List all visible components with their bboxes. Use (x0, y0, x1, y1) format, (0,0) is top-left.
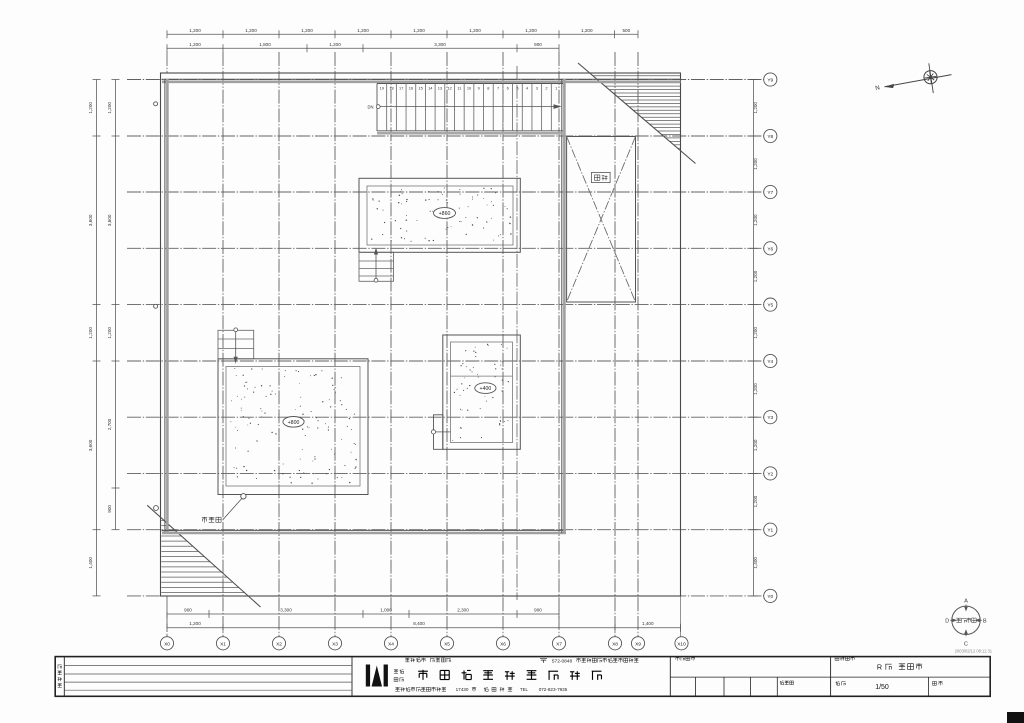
svg-text:1,200: 1,200 (189, 621, 201, 626)
svg-text:+800: +800 (288, 420, 300, 426)
svg-text:1/50: 1/50 (875, 684, 889, 691)
svg-text:Y4: Y4 (767, 359, 773, 365)
svg-text:X10: X10 (677, 641, 686, 647)
svg-text:8: 8 (487, 86, 489, 91)
svg-text:16: 16 (409, 86, 413, 91)
svg-text:A: A (964, 599, 968, 605)
svg-text:13: 13 (438, 86, 442, 91)
svg-text:2: 2 (545, 86, 547, 91)
svg-text:3,600: 3,600 (88, 439, 93, 451)
svg-text:TEL: TEL (520, 687, 528, 692)
svg-text:1,200: 1,200 (753, 327, 758, 339)
svg-text:1,200: 1,200 (525, 28, 537, 33)
svg-text:1,400: 1,400 (642, 621, 654, 626)
svg-text:1,200: 1,200 (413, 28, 425, 33)
svg-text:DN: DN (367, 104, 373, 109)
svg-text:X7: X7 (556, 641, 562, 647)
svg-text:5: 5 (516, 86, 518, 91)
svg-text:1,200: 1,200 (469, 28, 481, 33)
svg-text:X9: X9 (635, 641, 641, 647)
svg-text:Y9: Y9 (767, 78, 773, 84)
svg-text:1,200: 1,200 (189, 28, 201, 33)
svg-text:1,200: 1,200 (88, 102, 93, 114)
svg-text:3,300: 3,300 (434, 42, 446, 47)
svg-text:1,200: 1,200 (753, 383, 758, 395)
svg-text:X8: X8 (612, 641, 618, 647)
svg-text:17430: 17430 (456, 687, 469, 692)
svg-text:X0: X0 (164, 641, 170, 647)
svg-text:6: 6 (507, 86, 509, 91)
svg-text:072-823-7935: 072-823-7935 (539, 687, 568, 692)
svg-text:3,600: 3,600 (88, 214, 93, 226)
svg-text:1,200: 1,200 (189, 42, 201, 47)
svg-text:X3: X3 (332, 641, 338, 647)
svg-text:1,200: 1,200 (88, 327, 93, 339)
svg-text:1,200: 1,200 (753, 158, 758, 170)
svg-text:X1: X1 (220, 641, 226, 647)
svg-text:19: 19 (380, 86, 384, 91)
svg-text:1,200: 1,200 (581, 28, 593, 33)
svg-text:17: 17 (399, 86, 403, 91)
svg-text:Y7: Y7 (767, 190, 773, 196)
svg-text:3,600: 3,600 (107, 214, 112, 226)
svg-text:Y5: Y5 (767, 303, 773, 309)
svg-text:900: 900 (107, 505, 112, 513)
svg-text:Y2: Y2 (767, 471, 773, 477)
svg-text:3,300: 3,300 (280, 607, 292, 612)
svg-text:X6: X6 (500, 641, 506, 647)
svg-text:11: 11 (457, 86, 461, 91)
svg-text:X5: X5 (444, 641, 450, 647)
svg-text:7: 7 (497, 86, 499, 91)
svg-text:1,200: 1,200 (753, 270, 758, 282)
svg-text:12: 12 (447, 86, 451, 91)
svg-text:900: 900 (184, 607, 192, 612)
svg-text:1,200: 1,200 (357, 28, 369, 33)
svg-text:Y1: Y1 (767, 528, 773, 534)
svg-text:1,800: 1,800 (259, 42, 271, 47)
svg-text:9: 9 (478, 86, 480, 91)
svg-text:900: 900 (534, 42, 542, 47)
svg-text:1,400: 1,400 (88, 557, 93, 569)
svg-text:500: 500 (622, 28, 630, 33)
svg-text:1,200: 1,200 (107, 102, 112, 114)
svg-text:2003/02/12 08:11:31: 2003/02/12 08:11:31 (955, 648, 993, 653)
svg-text:+400: +400 (480, 386, 492, 392)
svg-text:Y8: Y8 (767, 134, 773, 140)
svg-text:8,400: 8,400 (413, 621, 425, 626)
svg-text:X2: X2 (276, 641, 282, 647)
svg-text:Y3: Y3 (767, 415, 773, 421)
svg-text:B: B (983, 618, 987, 624)
svg-text:15: 15 (418, 86, 422, 91)
svg-text:X4: X4 (388, 641, 394, 647)
svg-text:1,200: 1,200 (329, 42, 341, 47)
svg-text:1,000: 1,000 (380, 607, 392, 612)
svg-text:900: 900 (534, 607, 542, 612)
svg-text:572-0848: 572-0848 (552, 658, 573, 664)
svg-text:1,200: 1,200 (301, 28, 313, 33)
svg-text:1,400: 1,400 (753, 557, 758, 569)
svg-text:1,200: 1,200 (753, 439, 758, 451)
svg-text:1,200: 1,200 (245, 28, 257, 33)
svg-text:R: R (877, 662, 882, 671)
svg-text:1,200: 1,200 (753, 102, 758, 114)
svg-text:2,700: 2,700 (107, 418, 112, 430)
svg-text:Y0: Y0 (767, 594, 773, 600)
svg-text:1,200: 1,200 (753, 495, 758, 507)
svg-text:2,300: 2,300 (457, 607, 469, 612)
svg-text:Y6: Y6 (767, 246, 773, 252)
svg-text:D: D (945, 618, 949, 624)
svg-text:1,200: 1,200 (107, 327, 112, 339)
svg-text:C: C (964, 641, 968, 647)
svg-text:+860: +860 (439, 211, 451, 217)
svg-text:1,200: 1,200 (753, 214, 758, 226)
svg-text:3: 3 (536, 86, 538, 91)
svg-text:18: 18 (389, 86, 393, 91)
svg-text:1: 1 (555, 86, 557, 91)
